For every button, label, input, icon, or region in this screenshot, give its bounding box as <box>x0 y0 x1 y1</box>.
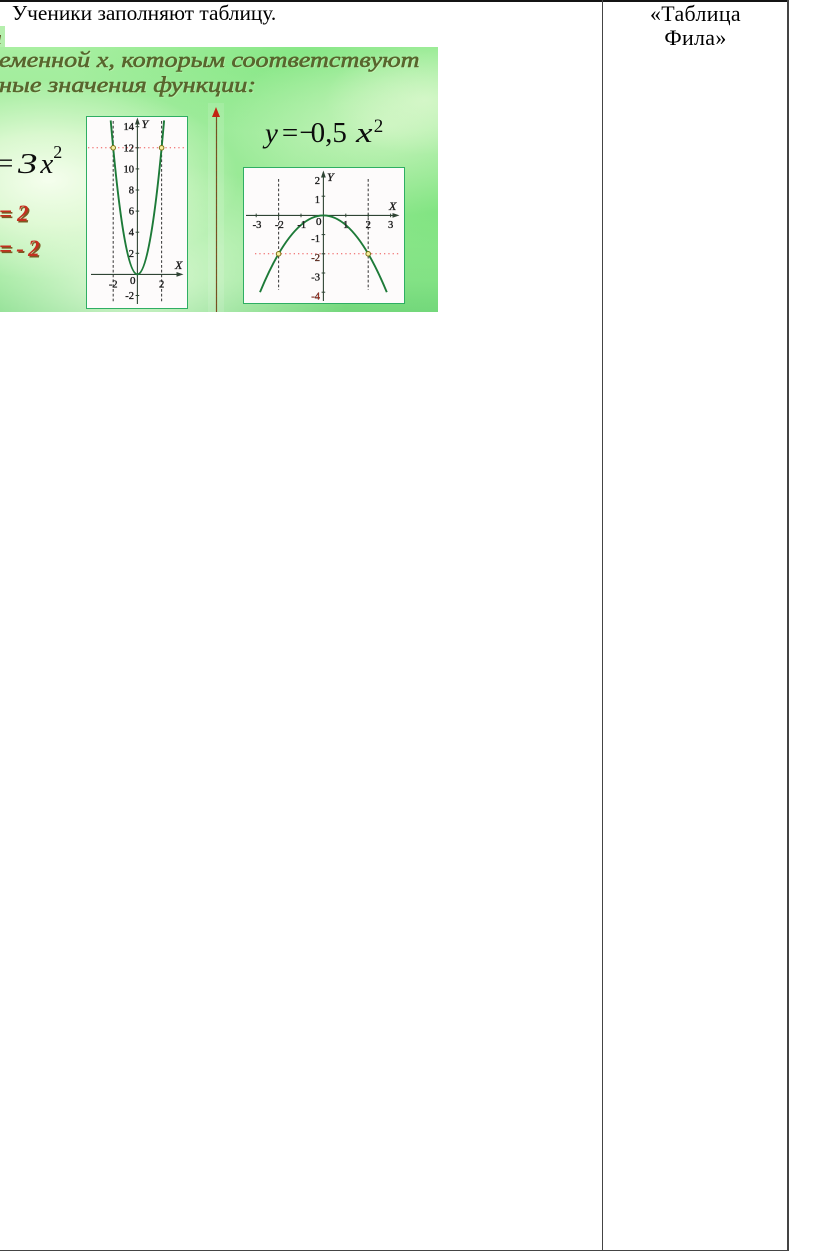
svg-text:-3: -3 <box>311 272 320 283</box>
svg-text:-4: -4 <box>311 292 320 302</box>
svg-text:-3: -3 <box>253 220 262 231</box>
svg-text:4: 4 <box>129 228 135 239</box>
svg-text:2: 2 <box>129 249 134 260</box>
svg-text:3: 3 <box>388 220 393 231</box>
svg-text:0: 0 <box>130 275 136 287</box>
svg-text:-1: -1 <box>297 220 306 231</box>
svg-text:12: 12 <box>124 143 135 154</box>
svg-text:1: 1 <box>343 220 348 231</box>
svg-text:2: 2 <box>159 280 164 291</box>
svg-text:-1: -1 <box>311 234 320 245</box>
svg-text:-2: -2 <box>311 253 320 264</box>
svg-text:X: X <box>174 258 183 272</box>
svg-text:6: 6 <box>129 207 134 218</box>
svg-text:Y: Y <box>327 170 335 184</box>
svg-text:2: 2 <box>366 220 371 231</box>
svg-text:0: 0 <box>316 216 322 228</box>
svg-text:2: 2 <box>315 176 320 187</box>
svg-text:1: 1 <box>315 195 320 206</box>
svg-text:X: X <box>388 199 397 213</box>
svg-text:-2: -2 <box>125 291 134 302</box>
svg-text:10: 10 <box>124 164 135 175</box>
svg-text:14: 14 <box>124 122 135 133</box>
svg-text:-2: -2 <box>275 220 284 231</box>
svg-text:-2: -2 <box>109 280 118 291</box>
svg-text:8: 8 <box>129 186 134 197</box>
svg-text:Y: Y <box>142 117 150 131</box>
